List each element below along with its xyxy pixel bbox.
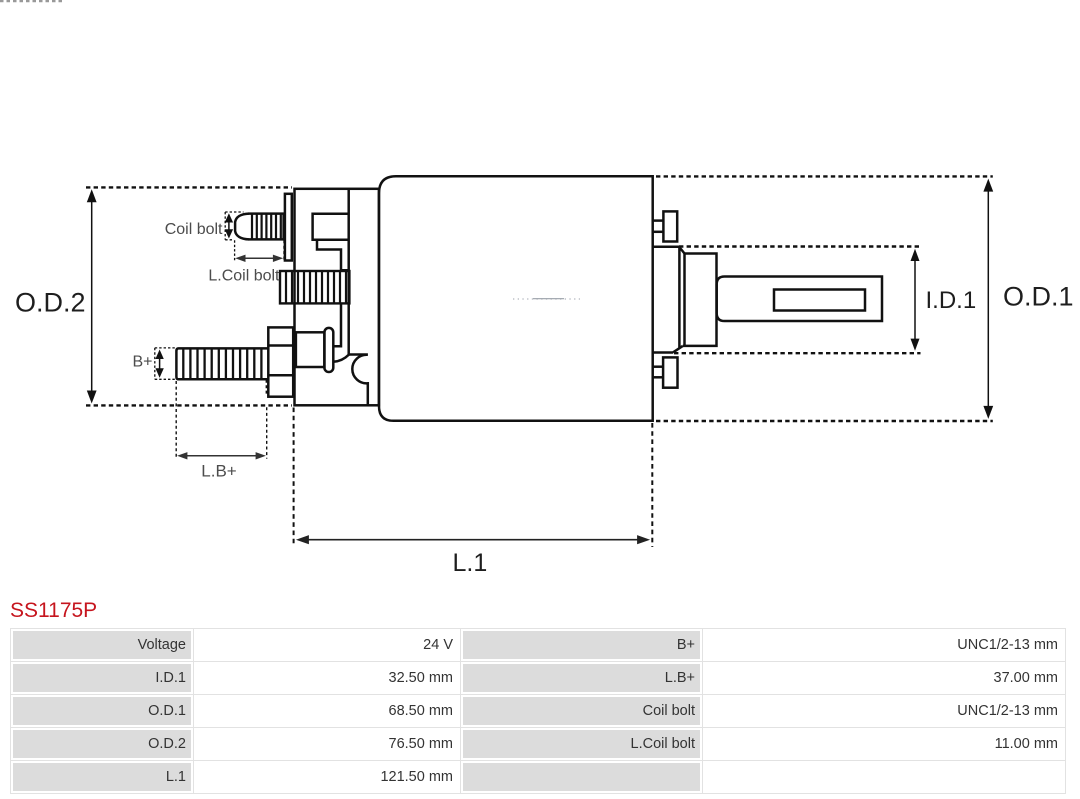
svg-text:Coil bolt: Coil bolt (165, 221, 223, 238)
svg-text:L.1: L.1 (453, 549, 488, 577)
svg-text:O.D.2: O.D.2 (15, 288, 86, 318)
svg-text:L.B+: L.B+ (201, 462, 237, 481)
svg-text:O.D.1: O.D.1 (1003, 282, 1074, 312)
svg-text:I.D.1: I.D.1 (926, 287, 977, 314)
svg-text:L.Coil bolt: L.Coil bolt (208, 268, 280, 285)
svg-text:B+: B+ (132, 354, 152, 371)
